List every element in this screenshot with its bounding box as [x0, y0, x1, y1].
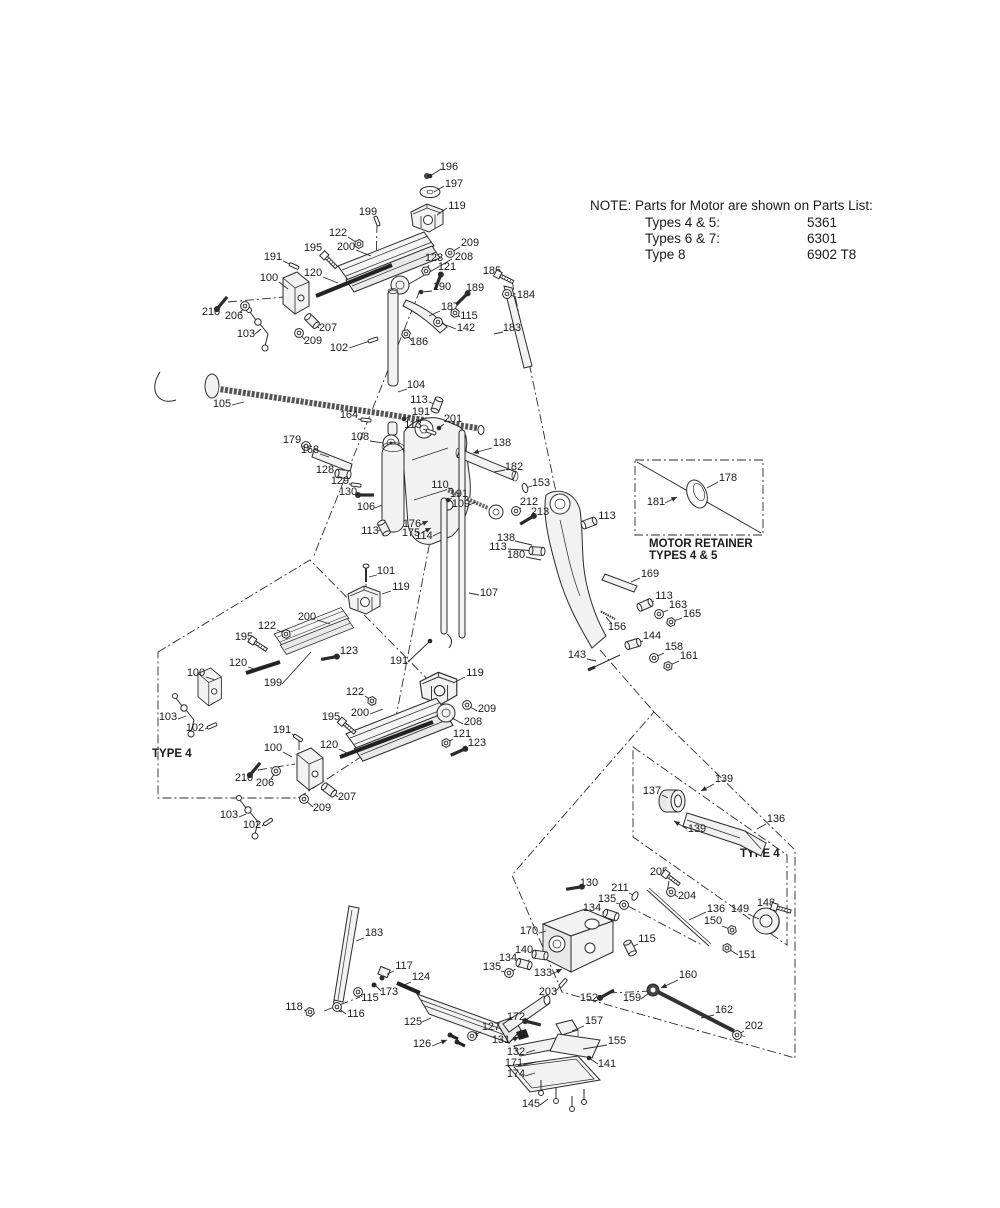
part-callout-160-124: 160 — [679, 969, 697, 981]
part-callout-136-103: 136 — [767, 813, 785, 825]
leader-line-119 — [382, 591, 391, 594]
part-callout-123-90: 123 — [468, 737, 486, 749]
leader-line-103 — [239, 814, 246, 817]
part-callout-155-141: 155 — [608, 1035, 626, 1047]
part-callouts: 1961971191991222002092081951231211201911… — [159, 161, 792, 1110]
leader-line-178 — [707, 482, 718, 488]
part-callout-195-8: 195 — [304, 242, 322, 254]
hardware-pin-102 — [263, 818, 273, 826]
part-callout-115-25: 115 — [460, 310, 478, 322]
hardware-washer-116 — [331, 1001, 343, 1013]
leader-line-160 — [661, 980, 678, 988]
hardware-ring-211 — [631, 891, 640, 902]
leader-line-125 — [422, 1018, 431, 1022]
tube-107a — [441, 498, 447, 634]
part-callout-102-19: 102 — [330, 342, 348, 354]
hardware-nut-165 — [665, 617, 676, 627]
part-callout-121-10: 121 — [438, 261, 456, 273]
leader-line-124 — [404, 982, 411, 985]
hardware-washer-209 — [461, 699, 473, 711]
part-callout-153-43: 153 — [532, 477, 550, 489]
rod-104 — [388, 290, 398, 386]
hardware-bolt-195 — [320, 251, 339, 270]
part-callout-195-86: 195 — [322, 711, 340, 723]
part-callout-127-136: 127 — [482, 1021, 500, 1033]
motor-retainer-subtitle: TYPES 4 & 5 — [649, 550, 718, 562]
part-callout-207-17: 207 — [319, 322, 337, 334]
part-callout-126-135: 126 — [413, 1038, 431, 1050]
part-callout-144-66: 144 — [643, 630, 661, 642]
leader-line-138 — [515, 541, 532, 545]
part-callout-113-56: 113 — [489, 541, 507, 553]
part-callout-120-78: 120 — [229, 657, 247, 669]
type4-right-box: TYPE 4 — [512, 712, 795, 1058]
motor-retainer-title: MOTOR RETAINER — [649, 538, 753, 550]
leader-line-120 — [339, 749, 347, 753]
hardware-screw-130 — [355, 492, 374, 498]
part-callout-119-83: 119 — [466, 667, 484, 679]
part-callout-196-0: 196 — [440, 161, 458, 173]
part-callout-157-138: 157 — [585, 1015, 603, 1027]
hardware-cyl-140 — [532, 950, 549, 960]
part-callout-190-20: 190 — [433, 281, 451, 293]
note-row-value: 6902 T8 — [807, 247, 856, 262]
hardware-bolt-205 — [661, 870, 681, 888]
leader-line-101 — [369, 575, 377, 577]
part-callout-197-1: 197 — [445, 178, 463, 190]
part-callout-156-65: 156 — [608, 621, 626, 633]
leader-line-200 — [370, 709, 383, 714]
leader-line-191 — [408, 641, 430, 662]
note-row-label: Types 4 & 5: — [645, 215, 720, 230]
hardware-pin-199 — [374, 216, 381, 226]
part-callout-122-75: 122 — [258, 620, 276, 632]
part-callout-184-23: 184 — [517, 289, 535, 301]
part-callout-209-87: 209 — [478, 703, 496, 715]
part-callout-133-119: 133 — [534, 967, 552, 979]
part-callout-116-133: 116 — [347, 1008, 365, 1020]
part-callout-134-109: 134 — [583, 902, 601, 914]
hardware-nut-121 — [440, 737, 452, 748]
part-callout-151-114: 151 — [738, 949, 756, 961]
part-callout-149-111: 149 — [731, 903, 749, 915]
hardware-screw-172 — [522, 1017, 542, 1027]
leader-line-199 — [282, 652, 311, 684]
hardware-screw-130 — [566, 883, 586, 892]
leader-line-181 — [665, 497, 677, 503]
note-row-label: Types 6 & 7: — [645, 231, 720, 246]
part-callout-101-72: 101 — [377, 565, 395, 577]
part-callout-114-54: 114 — [415, 530, 433, 542]
fitting-117 — [378, 966, 390, 977]
hardware-dot-190 — [419, 290, 424, 295]
part-callout-107-70: 107 — [480, 587, 498, 599]
hardware-cyl-113 — [636, 598, 654, 612]
part-callout-208-88: 208 — [464, 716, 482, 728]
bearing-109 — [489, 505, 503, 519]
washer-197 — [420, 187, 440, 198]
part-callout-203-121: 203 — [539, 986, 557, 998]
part-callout-199-80: 199 — [264, 677, 282, 689]
tube-107b — [459, 430, 465, 638]
hardware-nut-151 — [721, 942, 733, 953]
exploded-parts-diagram: NOTE: Parts for Motor are shown on Parts… — [0, 0, 1000, 1208]
part-callout-174-144: 174 — [507, 1068, 525, 1080]
part-callout-115-120: 115 — [638, 933, 656, 945]
hardware-ring-153 — [521, 483, 529, 493]
hardware-cylv-113 — [430, 396, 443, 414]
part-callout-139-101: 139 — [715, 773, 733, 785]
part-callout-161-69: 161 — [680, 650, 698, 662]
part-callout-202-126: 202 — [745, 1020, 763, 1032]
leader-line-200 — [356, 250, 371, 256]
hardware-washer-135 — [504, 968, 515, 979]
part-callout-200-85: 200 — [351, 707, 369, 719]
part-callout-143-67: 143 — [568, 649, 586, 661]
leader-line-100 — [283, 752, 292, 757]
column-106 — [382, 444, 404, 532]
part-callout-150-113: 150 — [704, 915, 722, 927]
part-callout-200-5: 200 — [337, 241, 355, 253]
clamp-157 — [556, 1020, 578, 1035]
note-row-label: Type 8 — [645, 247, 686, 262]
part-callout-115-131: 115 — [361, 992, 379, 1004]
hardware-pin-203 — [559, 978, 568, 988]
hardware-cyl-144 — [624, 638, 642, 650]
hardware-cylv-115 — [623, 939, 637, 957]
part-callout-134-117: 134 — [499, 952, 517, 964]
part-callout-145-145: 145 — [522, 1098, 540, 1110]
part-callout-181-60: 181 — [647, 496, 665, 508]
parts-diagram-page: NOTE: Parts for Motor are shown on Parts… — [0, 0, 1000, 1208]
part-callout-113-51: 113 — [361, 525, 379, 537]
part-callout-209-18: 209 — [304, 335, 322, 347]
part-callout-162-125: 162 — [715, 1004, 733, 1016]
part-callout-200-74: 200 — [298, 611, 316, 623]
part-callout-191-92: 191 — [273, 724, 291, 736]
hardware-pin-164 — [361, 418, 371, 422]
part-callout-207-96: 207 — [338, 791, 356, 803]
hardware-screw-213 — [519, 512, 538, 527]
part-callout-180-57: 180 — [507, 549, 525, 561]
part-callout-113-31: 113 — [410, 394, 428, 406]
leader-line-107 — [469, 593, 479, 595]
bracket-155 — [550, 1034, 600, 1058]
hardware-bolt-195 — [248, 636, 269, 653]
part-callout-173-130: 173 — [380, 986, 398, 998]
note-title: NOTE: Parts for Motor are shown on Parts… — [590, 198, 873, 213]
hardware-cyl-207 — [320, 782, 338, 798]
yoke-arm-180 — [545, 491, 606, 648]
part-callout-139-102: 139 — [688, 823, 706, 835]
leader-line-159 — [641, 993, 649, 999]
part-callout-102-99: 102 — [243, 819, 261, 831]
hardware-cyl-134 — [515, 958, 533, 970]
hardware-nut-123 — [420, 265, 431, 277]
part-callout-142-26: 142 — [457, 322, 475, 334]
part-callout-179-37: 179 — [283, 434, 301, 446]
part-callout-137-100: 137 — [643, 785, 661, 797]
leader-line-106 — [375, 505, 382, 508]
part-callout-206-15: 206 — [225, 310, 243, 322]
part-callout-125-134: 125 — [404, 1016, 422, 1028]
leader-line-136 — [757, 824, 766, 829]
part-callout-103-98: 103 — [220, 809, 238, 821]
part-callout-100-79: 100 — [187, 667, 205, 679]
hardware-cyl-113 — [580, 516, 598, 529]
part-callout-120-11: 120 — [304, 267, 322, 279]
part-callout-165-64: 165 — [683, 608, 701, 620]
part-callout-209-6: 209 — [461, 237, 479, 249]
part-callout-117-128: 117 — [395, 960, 413, 972]
part-callout-186-27: 186 — [410, 336, 428, 348]
part-callout-135-118: 135 — [483, 961, 501, 973]
note-row-value: 5361 — [807, 215, 837, 230]
part-callout-108-36: 108 — [351, 431, 369, 443]
hardware-screw-152 — [596, 987, 616, 1001]
leader-line-139 — [701, 784, 714, 791]
part-callout-120-91: 120 — [320, 739, 338, 751]
rod-183-lower — [334, 906, 359, 1002]
part-callout-119-2: 119 — [448, 200, 466, 212]
part-callout-100-13: 100 — [260, 272, 278, 284]
part-callout-110-44: 110 — [431, 479, 449, 491]
note-row-value: 6301 — [807, 231, 837, 246]
part-callout-209-97: 209 — [313, 802, 331, 814]
hardware-nut-122 — [366, 695, 378, 707]
type4-left-title: TYPE 4 — [152, 748, 192, 760]
leader-line-143 — [587, 659, 596, 661]
hardware-pin-102 — [207, 723, 217, 730]
part-callout-130-45: 130 — [339, 486, 357, 498]
part-callout-104-30: 104 — [407, 379, 425, 391]
part-callout-131-139: 131 — [492, 1034, 510, 1046]
part-callout-138-39: 138 — [493, 437, 511, 449]
leader-line-105 — [232, 402, 244, 405]
hook-105 — [155, 372, 176, 401]
hardware-washer-135 — [619, 900, 630, 911]
part-callout-169-61: 169 — [641, 568, 659, 580]
leader-line-103 — [255, 329, 261, 334]
part-callout-152-122: 152 — [580, 992, 598, 1004]
part-callout-122-84: 122 — [346, 686, 364, 698]
hardware-screw-123 — [321, 653, 341, 662]
part-callout-103-16: 103 — [237, 328, 255, 340]
leader-line-145 — [540, 1099, 548, 1105]
part-callout-191-12: 191 — [264, 251, 282, 263]
leader-line-108 — [370, 441, 383, 443]
hardware-bolt-185 — [494, 270, 515, 285]
leader-line-208 — [452, 718, 463, 724]
knob-208b — [437, 704, 455, 722]
hardware-cyl-207 — [304, 313, 321, 330]
hardware-screw-123 — [449, 745, 469, 758]
leader-line-103 — [178, 716, 186, 719]
leader-line-169 — [631, 578, 640, 582]
motor-note: NOTE: Parts for Motor are shown on Parts… — [590, 198, 873, 262]
part-callout-118-132: 118 — [285, 1001, 303, 1013]
part-callout-208-7: 208 — [455, 251, 473, 263]
part-callout-122-4: 122 — [329, 227, 347, 239]
hardware-pin-102 — [368, 337, 378, 343]
part-callout-113-34: 113 — [404, 419, 422, 431]
leader-line-126 — [432, 1040, 447, 1046]
hardware-washer-158 — [648, 652, 660, 664]
part-callout-109-47: 109 — [452, 498, 470, 510]
part-callout-191-32: 191 — [412, 406, 430, 418]
part-callout-170-115: 170 — [520, 925, 538, 937]
part-callout-201-33: 201 — [444, 413, 462, 425]
part-callout-183-127: 183 — [365, 927, 383, 939]
leader-line-138 — [473, 448, 492, 453]
part-callout-102-82: 102 — [186, 722, 204, 734]
part-callout-159-123: 159 — [623, 992, 641, 1004]
hardware-washer-204 — [665, 886, 677, 898]
hardware-cyl-113 — [529, 546, 546, 555]
part-callout-182-40: 182 — [505, 461, 523, 473]
leader-line-183 — [356, 938, 364, 941]
hardware-pin-191 — [293, 734, 303, 742]
part-callout-141-142: 141 — [598, 1058, 616, 1070]
part-callout-100-93: 100 — [264, 742, 282, 754]
hardware-nut-118 — [304, 1007, 315, 1017]
part-callout-168-38: 168 — [301, 444, 319, 456]
part-callout-178-59: 178 — [719, 472, 737, 484]
hardware-pin-191 — [289, 262, 299, 269]
hardware-nut-161 — [662, 661, 673, 672]
part-callout-119-73: 119 — [392, 581, 410, 593]
hardware-washer-163 — [653, 608, 665, 620]
leader-line-180 — [526, 557, 541, 560]
part-callout-106-50: 106 — [357, 501, 375, 513]
rod-120c — [246, 662, 280, 673]
key-124 — [397, 983, 420, 993]
part-callout-164-35: 164 — [340, 409, 358, 421]
bar-169 — [602, 574, 637, 592]
part-callout-123-77: 123 — [340, 645, 358, 657]
motor-retainer-box: MOTOR RETAINER TYPES 4 & 5 — [635, 460, 763, 562]
part-callout-136-110: 136 — [707, 903, 725, 915]
leader-line-183 — [494, 332, 503, 334]
part-callout-140-116: 140 — [515, 944, 533, 956]
part-callout-204-105: 204 — [678, 890, 696, 902]
part-callout-124-129: 124 — [412, 971, 430, 983]
leader-line-104 — [398, 389, 407, 392]
part-callout-105-29: 105 — [213, 398, 231, 410]
part-callout-191-71: 191 — [390, 655, 408, 667]
part-callout-103-81: 103 — [159, 711, 177, 723]
leader-line-120 — [323, 277, 338, 283]
part-callout-113-58: 113 — [598, 510, 616, 522]
part-callout-183-28: 183 — [503, 322, 521, 334]
hardware-washer-127 — [466, 1030, 478, 1042]
part-callout-206-95: 206 — [256, 777, 274, 789]
hardware-nut-150 — [726, 925, 737, 936]
